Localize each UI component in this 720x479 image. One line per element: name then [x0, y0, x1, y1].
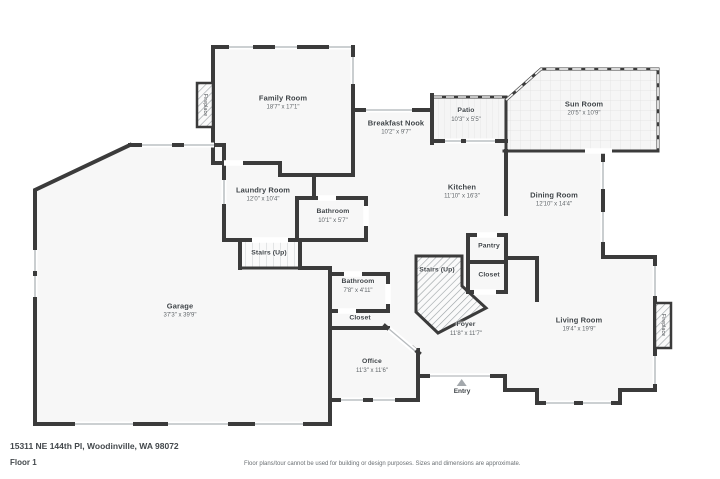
disclaimer-text: Floor plans/tour cannot be used for buil…	[244, 461, 521, 467]
floor-plan-drawing	[0, 0, 720, 479]
room-dims: 18'7" x 17'1"	[259, 104, 307, 112]
room-label-dining-room: Dining Room 12'10" x 14'4"	[530, 191, 578, 210]
room-dims: 10'1" x 5'7"	[317, 218, 350, 226]
room-name: Foyer	[450, 321, 482, 330]
room-name: Sun Room	[565, 100, 603, 110]
room-label-laundry-room: Laundry Room 12'0" x 10'4"	[236, 186, 290, 205]
room-dims: 12'10" x 14'4"	[530, 201, 578, 209]
room-dims: 12'0" x 10'4"	[236, 196, 290, 204]
room-name: Office	[356, 358, 388, 367]
property-address: 15311 NE 144th Pl, Woodinville, WA 98072	[10, 441, 179, 451]
floor-plan-page: Family Room 18'7" x 17'1" Breakfast Nook…	[0, 0, 720, 479]
room-dims: 19'4" x 19'9"	[556, 326, 603, 334]
room-dims: 20'5" x 10'9"	[565, 110, 603, 118]
room-name: Bathroom	[317, 208, 350, 217]
room-label-office: Office 11'3" x 11'6"	[356, 358, 388, 376]
room-name: Breakfast Nook	[368, 119, 424, 129]
entry-label: Entry	[454, 388, 471, 395]
room-name: Stairs (Up)	[419, 267, 454, 276]
room-label-stairs-upper: Stairs (Up)	[251, 250, 286, 259]
room-name: Family Room	[259, 94, 307, 104]
room-name: Garage	[164, 302, 197, 312]
room-dims: 11'10" x 16'3"	[444, 193, 480, 201]
room-dims: 11'3" x 11'6"	[356, 368, 388, 376]
room-name: Pantry	[478, 243, 500, 252]
room-label-patio: Patio 10'3" x 5'5"	[451, 107, 481, 125]
room-label-bathroom-upper: Bathroom 10'1" x 5'7"	[317, 208, 350, 226]
room-label-closet-office: Closet	[349, 315, 370, 324]
room-dims: 7'8" x 4'11"	[342, 288, 375, 296]
room-label-breakfast-nook: Breakfast Nook 10'2" x 9'7"	[368, 119, 424, 138]
fireplace-family-label: Fireplace	[202, 94, 208, 116]
room-label-kitchen: Kitchen 11'10" x 16'3"	[444, 183, 480, 202]
room-name: Bathroom	[342, 278, 375, 287]
room-label-family-room: Family Room 18'7" x 17'1"	[259, 94, 307, 113]
room-label-living-room: Living Room 19'4" x 19'9"	[556, 316, 603, 335]
room-label-stairs-main: Stairs (Up)	[419, 267, 454, 276]
room-label-pantry: Pantry	[478, 243, 500, 252]
room-label-sun-room: Sun Room 20'5" x 10'9"	[565, 100, 603, 119]
room-dims: 10'2" x 9'7"	[368, 129, 424, 137]
room-name: Laundry Room	[236, 186, 290, 196]
room-name: Dining Room	[530, 191, 578, 201]
room-name: Kitchen	[444, 183, 480, 193]
room-name: Stairs (Up)	[251, 250, 286, 259]
room-name: Patio	[451, 107, 481, 116]
room-label-garage: Garage 37'3" x 39'9"	[164, 302, 197, 321]
room-name: Closet	[349, 315, 370, 324]
entry-marker: Entry	[454, 379, 471, 395]
room-dims: 10'3" x 5'5"	[451, 117, 481, 125]
room-label-bathroom-main: Bathroom 7'8" x 4'11"	[342, 278, 375, 296]
room-name: Living Room	[556, 316, 603, 326]
room-label-closet-hall: Closet	[478, 272, 499, 281]
fireplace-living-label: Fireplace	[660, 314, 666, 336]
entry-arrow-icon	[457, 379, 467, 386]
room-dims: 37'3" x 39'9"	[164, 312, 197, 320]
room-label-foyer: Foyer 11'8" x 11'7"	[450, 321, 482, 339]
floor-label: Floor 1	[10, 458, 37, 467]
room-dims: 11'8" x 11'7"	[450, 331, 482, 339]
room-name: Closet	[478, 272, 499, 281]
